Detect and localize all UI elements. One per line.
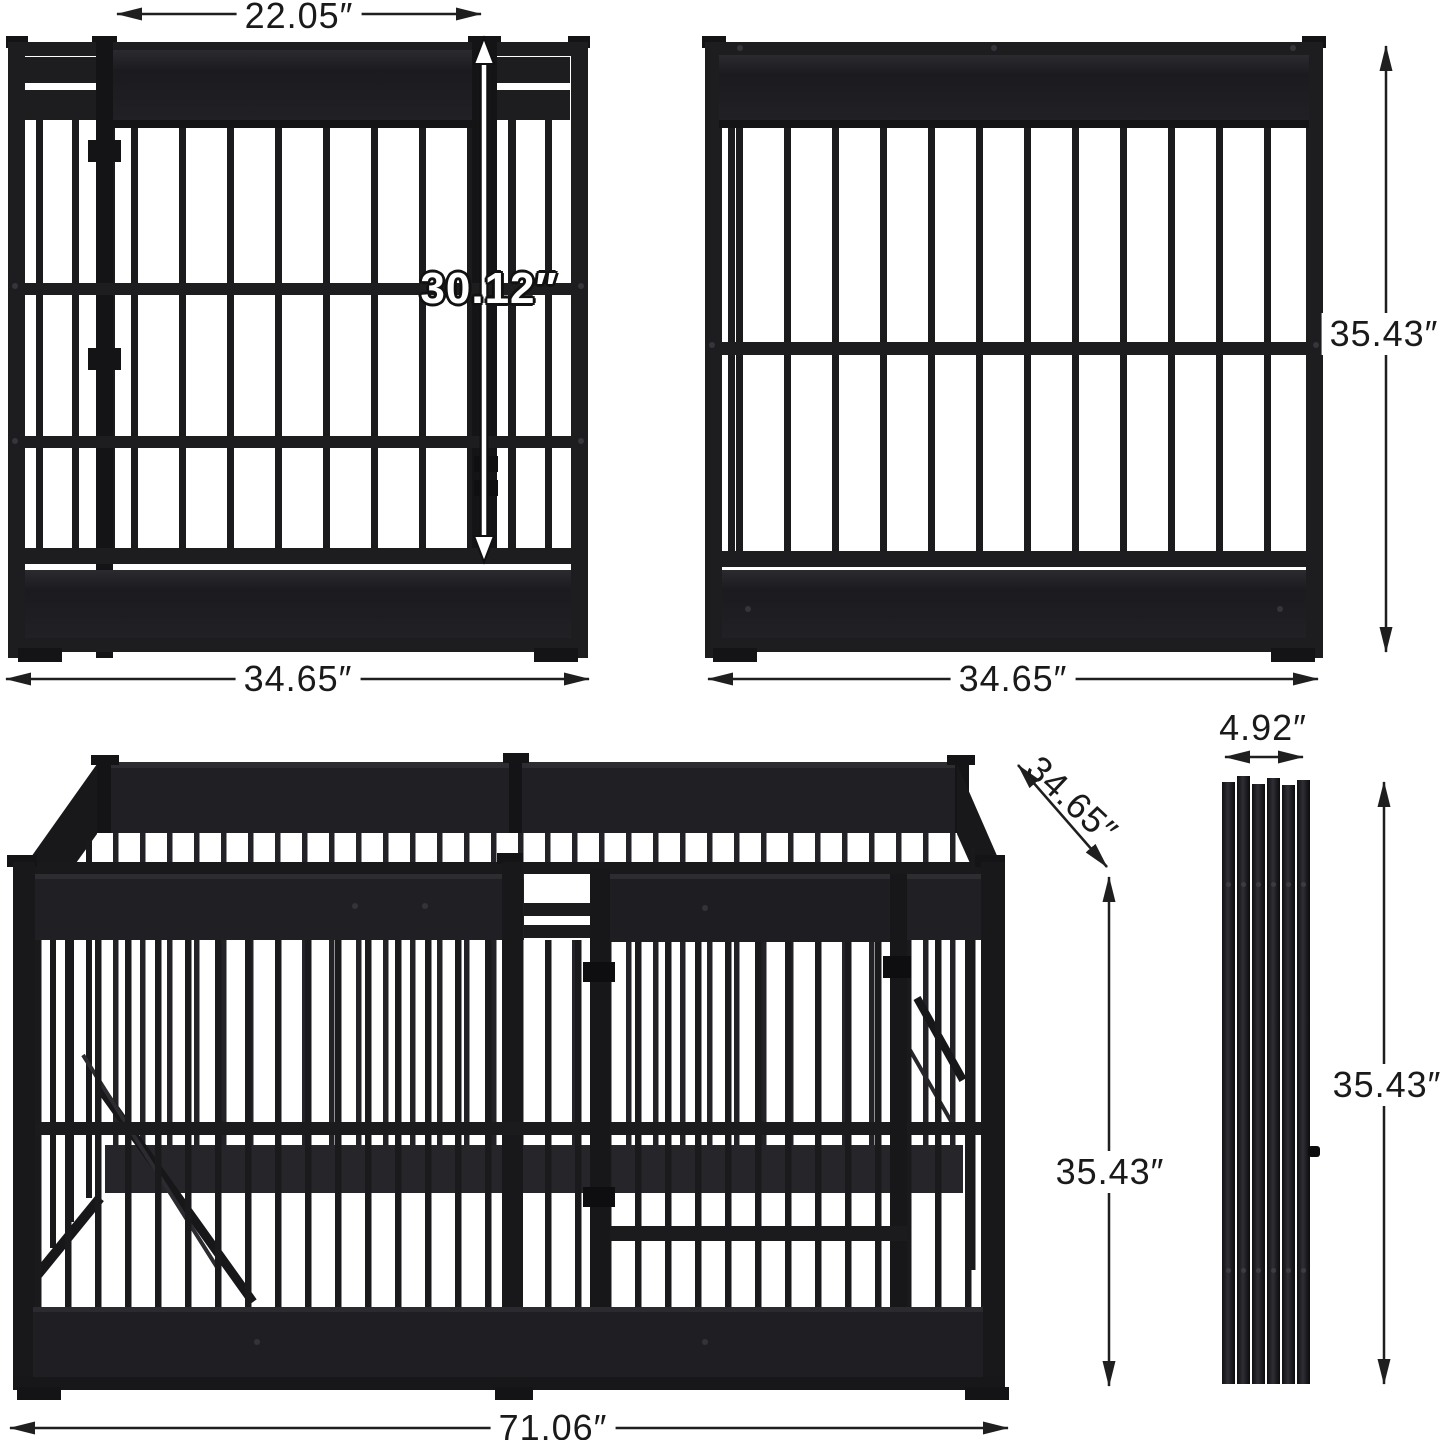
mid-rail [705,342,1323,355]
side-panel-width-label: 34.65″ [951,658,1076,700]
screw [1290,45,1296,51]
right-bars [497,120,570,552]
pen-depth-label: 34.65″ [1018,748,1126,853]
folded-slat [1297,780,1310,1384]
front-panel-width-label: 34.65″ [236,658,361,700]
stack-height-label: 35.43″ [1325,1064,1445,1106]
screw [709,342,715,348]
stack-thickness-label: 4.92″ [1219,707,1307,749]
screw [578,438,584,444]
gate-hinge [88,140,121,162]
bottom-kick-panel [25,570,571,638]
gate-header-rail [113,120,472,128]
folded-panels-figure [1222,776,1320,1384]
gate-height-label: 30.12″ [420,264,557,314]
header-rail [719,120,1309,128]
pen-height-label: 35.43″ [1048,1151,1173,1193]
side-panel-figure [705,36,1323,664]
folded-slat [1222,782,1235,1384]
screw [12,438,18,444]
assembled-pen-figure [5,750,1010,1400]
gate-bars [113,128,472,552]
top-rail [705,42,1323,56]
bottom-rail [8,638,588,652]
right-rung [497,90,570,120]
left-post [8,42,25,658]
header-panel [719,55,1309,121]
left-rung [25,90,96,120]
pen-width-label: 71.06″ [491,1407,616,1440]
bars-bottom-rail [705,551,1323,567]
foot [1271,648,1315,662]
gate-latch [474,480,498,496]
mid-rail [8,436,588,448]
gate-width-label: 22.05″ [237,0,362,37]
gate-header-panel [113,50,472,120]
foot [713,648,757,662]
screw [991,45,997,51]
folded-slat [1237,776,1250,1384]
folded-slat [1282,785,1295,1384]
bottom-kick-panel [722,570,1306,638]
gate-hinge [88,348,121,370]
folded-slat [1252,784,1265,1384]
screw [737,45,743,51]
product-dimension-diagram: 22.05″ 30.12″ 34.65″ 34.65″ 35.43″ 34.65… [0,0,1445,1440]
front-panel-figure [8,36,588,664]
latch-knob [1308,1146,1320,1157]
bars-bottom-rail [8,548,588,564]
pen-front-wall [7,853,1009,1400]
folded-slat [1267,778,1280,1384]
right-rung [497,57,570,83]
foot [534,648,578,662]
screw-row [1226,1268,1231,1273]
side-panel-height-label: 35.43″ [1322,313,1445,355]
screw [578,283,584,289]
left-bars [25,120,96,552]
screw [1277,606,1283,612]
screw [12,283,18,289]
left-rung [25,57,96,83]
panel-bars [722,128,1306,552]
foot [18,648,62,662]
screw [745,606,751,612]
right-post [571,42,588,658]
screw-row [1226,882,1231,887]
bottom-rail [705,638,1323,652]
screw [1313,342,1319,348]
gate-latch [474,456,498,472]
